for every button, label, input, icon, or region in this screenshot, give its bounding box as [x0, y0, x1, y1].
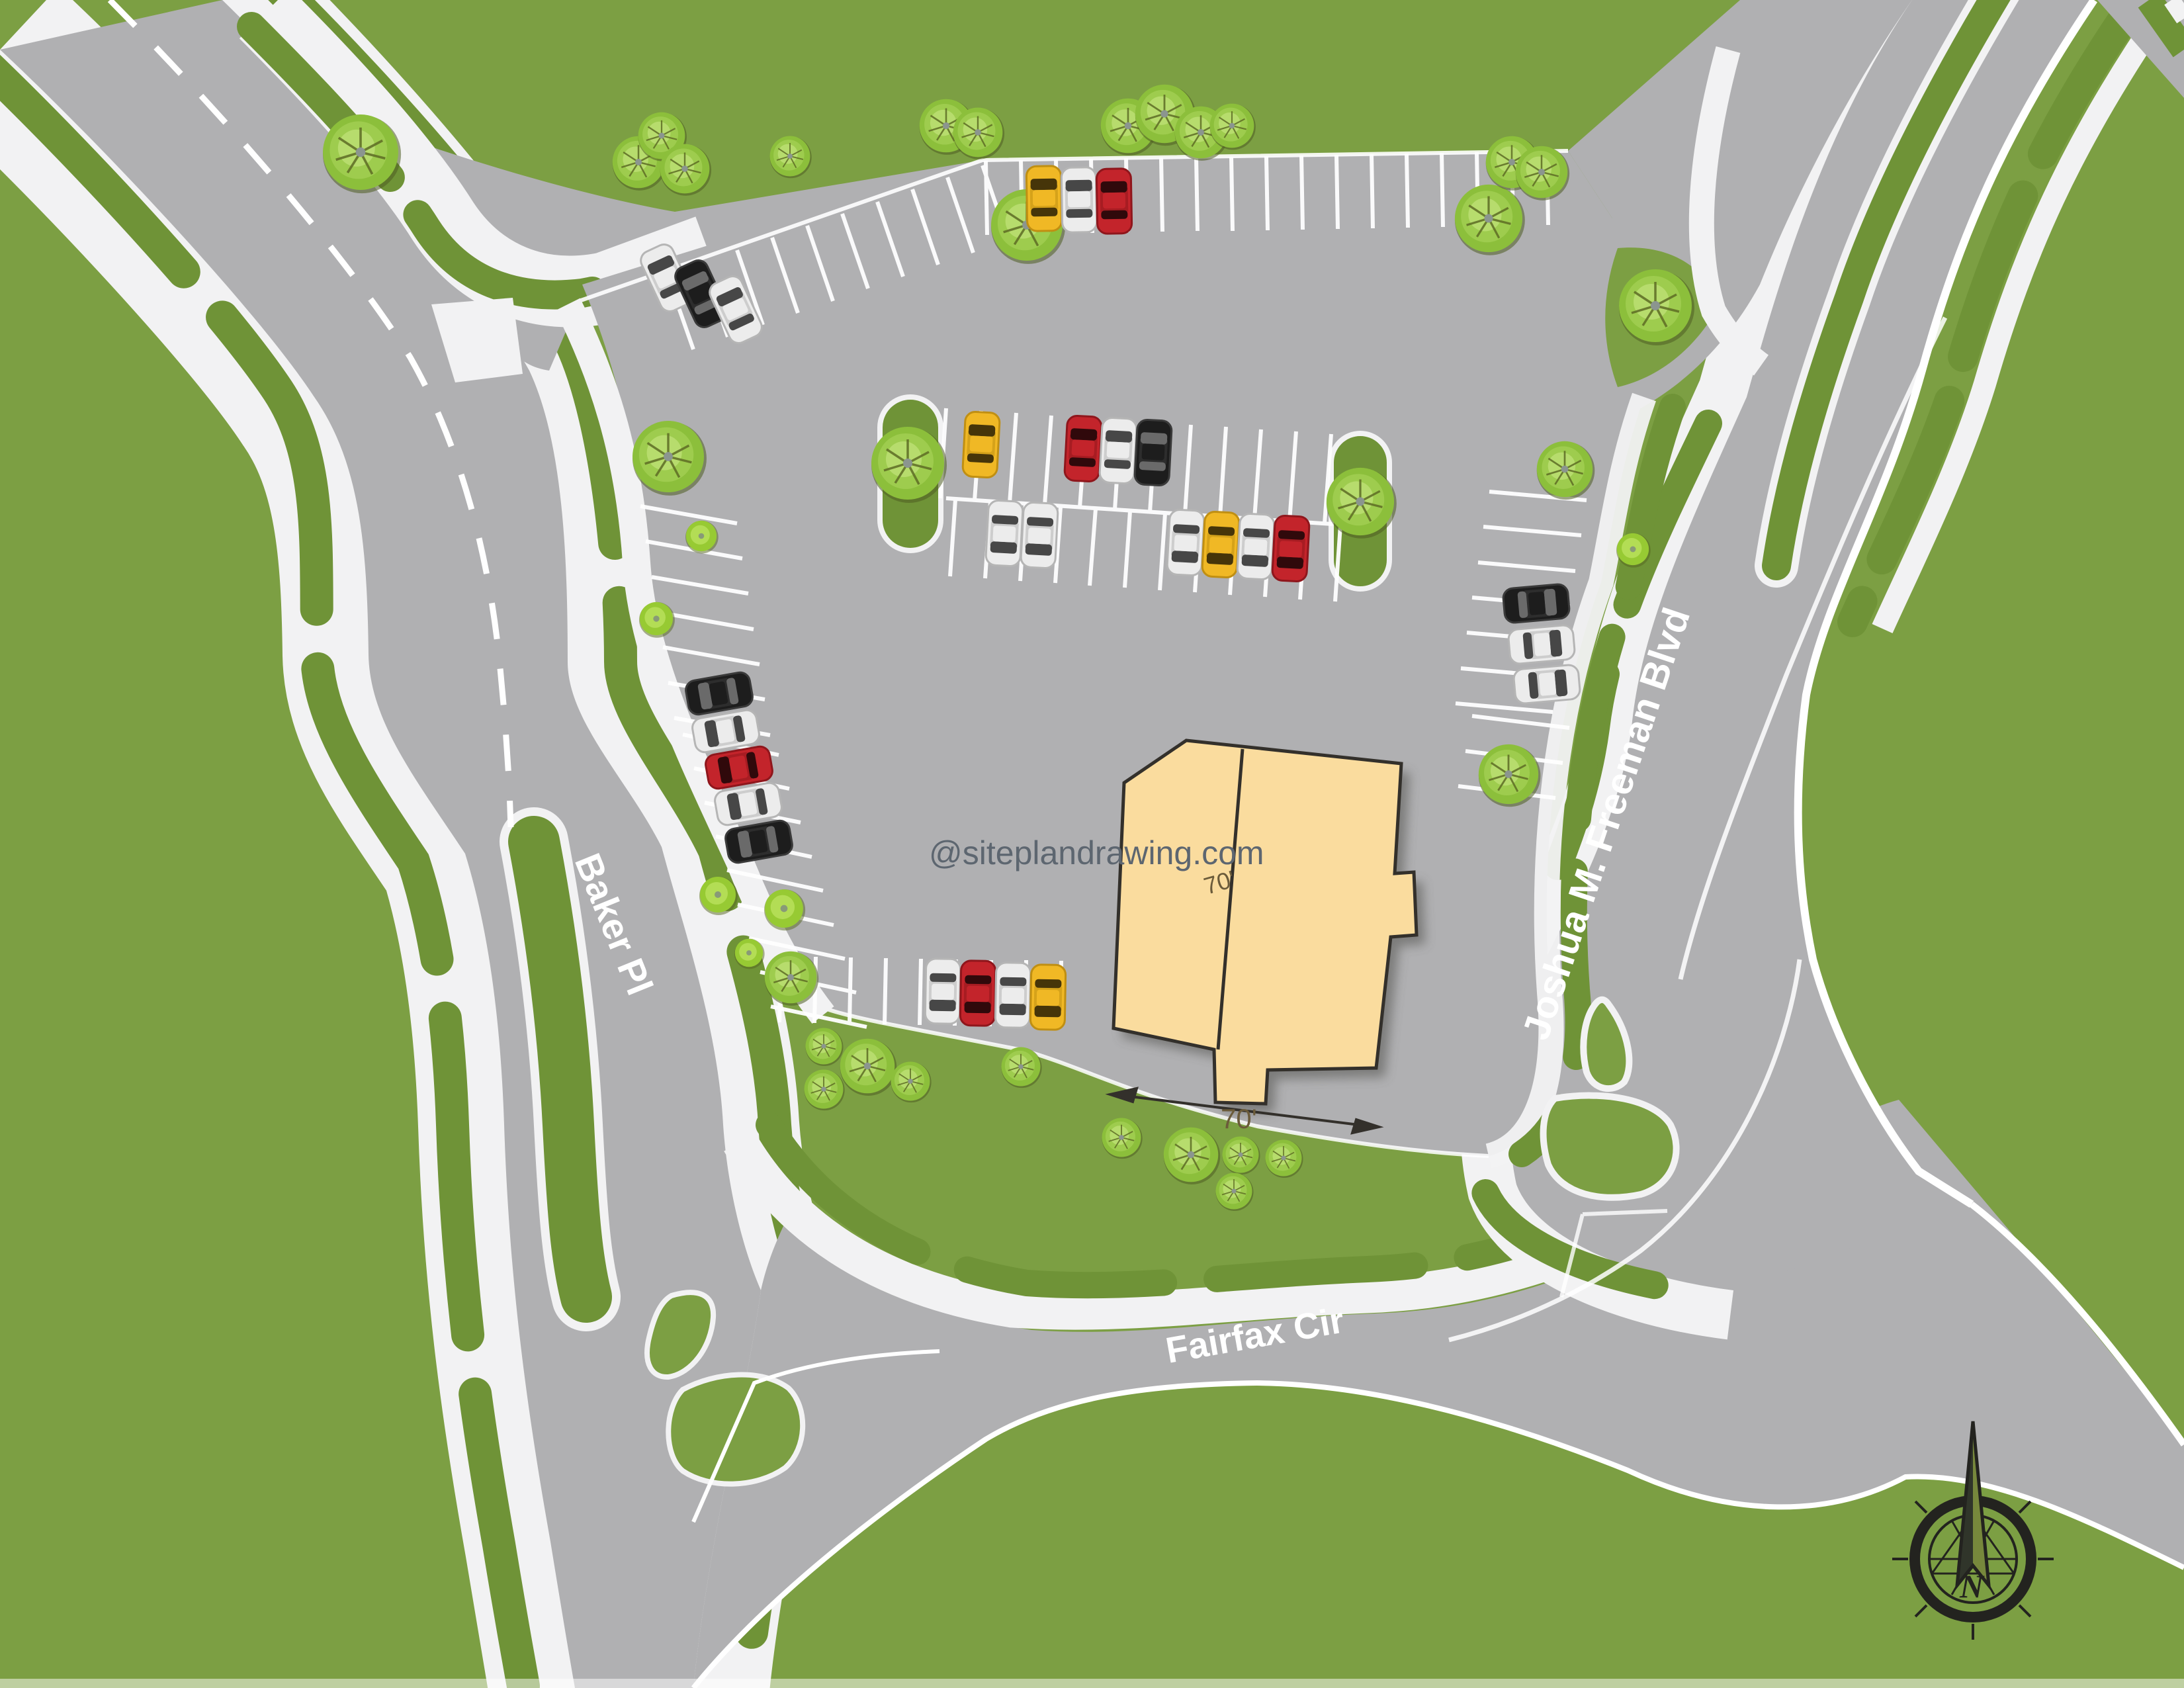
svg-text:@siteplandrawing.com: @siteplandrawing.com: [929, 834, 1264, 871]
svg-text:N: N: [1959, 1568, 1985, 1605]
svg-text:70': 70': [1221, 1103, 1257, 1134]
